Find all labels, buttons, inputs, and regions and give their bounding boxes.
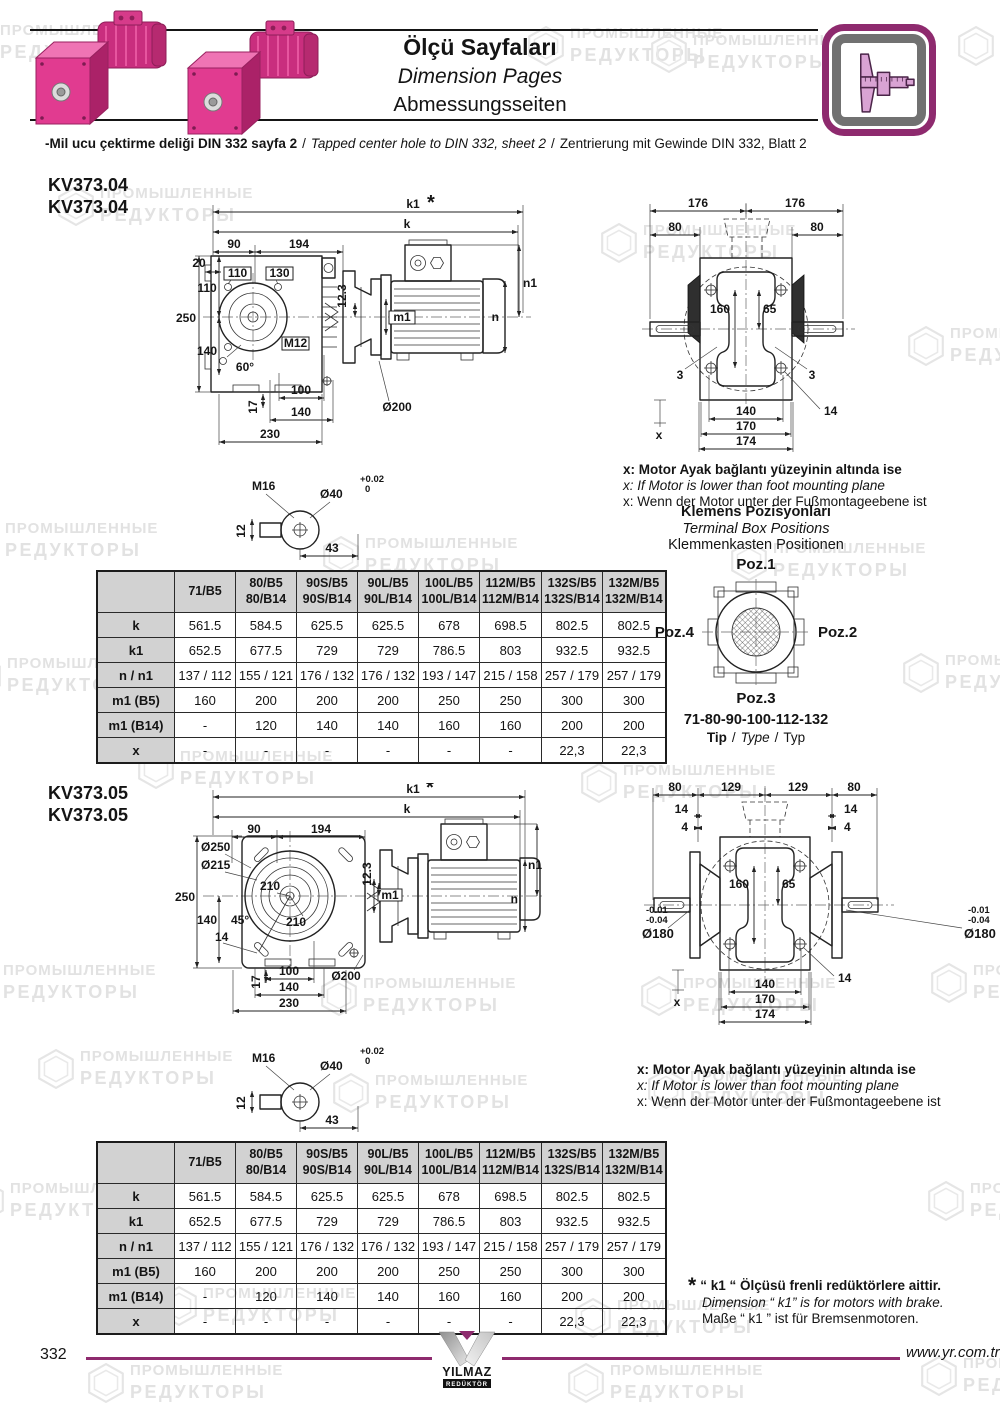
table-row: m1 (B14)-120140140160160200200	[97, 713, 666, 738]
column-header: 100L/B5 100L/B14	[419, 571, 480, 613]
dim-value: 257 / 179	[602, 1234, 665, 1259]
shaft-detail-kv05: M16 Ø40 +0.02 0 12 43	[222, 1040, 432, 1140]
model-label-kv04: KV373.04 KV373.04	[48, 174, 128, 218]
dim-value: 584.5	[236, 613, 297, 638]
hexagon-watermark-icon	[565, 1362, 607, 1404]
poz3-label: Poz.3	[716, 690, 796, 707]
brake-star: *	[426, 783, 434, 799]
watermark: ПРОМЫШЛЕННЫЕРЕДУКТОРЫ	[648, 32, 846, 74]
row-label: k1	[97, 1209, 175, 1234]
dim-label: 129	[721, 782, 741, 794]
hexagon-watermark-icon	[955, 25, 997, 67]
dim-label: 140	[197, 913, 217, 927]
dim-value: 300	[602, 688, 665, 713]
caliper-glyph	[841, 40, 917, 120]
brake-footnote: *“ k1 “ Ölçüsü frenli redüktörlere aitti…	[688, 1278, 944, 1328]
dim-label: 140	[197, 344, 217, 358]
dim-value: 22,3	[541, 1309, 602, 1335]
dim-label: 4	[681, 820, 688, 834]
dim-value: 698.5	[480, 1184, 542, 1209]
dim-label: 176	[688, 197, 708, 210]
dim-value: -	[236, 1309, 297, 1335]
hexagon-watermark-icon	[648, 32, 690, 74]
page-number: 332	[40, 1346, 67, 1364]
dim-label: 129	[788, 782, 808, 794]
dim-label: 3	[677, 368, 684, 382]
dim-value: 200	[236, 688, 297, 713]
dim-label: 60°	[236, 360, 254, 374]
dim-value: 140	[297, 1284, 358, 1309]
dim-label: m1	[381, 888, 399, 902]
dim-value: 176 / 132	[297, 1234, 358, 1259]
dim-label: 80	[668, 220, 682, 234]
dim-label: k1	[406, 197, 420, 211]
dim-label: 110	[228, 266, 248, 280]
dim-label: 3	[809, 368, 816, 382]
column-header: 80/B5 80/B14	[236, 1142, 297, 1184]
page-title-block: Ölçü Sayfaları Dimension Pages Abmessung…	[330, 34, 630, 117]
dim-label: 80	[668, 782, 682, 794]
dim-value: 120	[236, 713, 297, 738]
hexagon-watermark-icon	[598, 222, 640, 264]
dim-value: 561.5	[175, 1184, 236, 1209]
dim-value: 257 / 179	[602, 663, 665, 688]
dim-label: 210	[286, 915, 306, 929]
row-label: m1 (B5)	[97, 1259, 175, 1284]
row-label: x	[97, 738, 175, 764]
column-header: 71/B5	[175, 1142, 236, 1184]
dim-label: 194	[311, 822, 331, 836]
row-label: k1	[97, 638, 175, 663]
table-row: m1 (B5)160200200200250250300300	[97, 688, 666, 713]
hexagon-watermark-icon	[35, 1048, 77, 1090]
x-note-kv05: x: Motor Ayak bağlantı yüzeyinin altında…	[637, 1062, 941, 1110]
dim-label: 174	[755, 1007, 775, 1021]
column-header: 132M/B5 132M/B14	[602, 571, 665, 613]
corner-cell	[97, 1142, 175, 1184]
dim-value: 160	[419, 1284, 480, 1309]
column-header: 90S/B5 90S/B14	[297, 571, 358, 613]
dim-label: x	[674, 995, 681, 1009]
dim-label: Ø180	[964, 926, 996, 941]
dim-value: 786.5	[419, 1209, 480, 1234]
dim-value: 215 / 158	[480, 663, 542, 688]
column-header: 71/B5	[175, 571, 236, 613]
dim-value: 257 / 179	[541, 1234, 602, 1259]
dim-label: 230	[260, 427, 280, 441]
dim-label: n1	[528, 858, 542, 872]
dim-label: Ø180	[642, 926, 674, 941]
dim-label: 12	[234, 524, 248, 538]
dim-label: 43	[325, 1113, 339, 1127]
dim-value: 22,3	[541, 738, 602, 764]
kv05-side-drawing: k1 * k 90 194 Ø250 Ø215 210 210 25	[173, 783, 545, 1028]
dim-value: 250	[419, 1259, 480, 1284]
dim-value: 200	[541, 713, 602, 738]
dim-value: 140	[358, 1284, 419, 1309]
table-row: n / n1137 / 112155 / 121176 / 132176 / 1…	[97, 1234, 666, 1259]
dim-label: 45°	[231, 913, 249, 927]
hexagon-watermark-icon	[0, 520, 2, 562]
hexagon-watermark-icon	[925, 1180, 967, 1222]
dim-value: -	[480, 738, 542, 764]
row-label: x	[97, 1309, 175, 1335]
dim-label: 80	[847, 782, 861, 794]
dim-value: 257 / 179	[541, 663, 602, 688]
table-row: n / n1137 / 112155 / 121176 / 132176 / 1…	[97, 663, 666, 688]
dim-value: 677.5	[236, 1209, 297, 1234]
dim-value: 140	[297, 713, 358, 738]
dim-value: 932.5	[541, 638, 602, 663]
dim-value: 625.5	[358, 613, 419, 638]
dim-label: M16	[252, 1051, 276, 1065]
row-label: k	[97, 613, 175, 638]
dim-value: 561.5	[175, 613, 236, 638]
dim-value: 200	[297, 1259, 358, 1284]
dim-value: 652.5	[175, 638, 236, 663]
dim-label: 130	[269, 266, 289, 280]
terminal-positions-drawing	[700, 577, 812, 689]
dim-value: 625.5	[297, 613, 358, 638]
column-header: 100L/B5 100L/B14	[419, 1142, 480, 1184]
dim-label: 160	[729, 877, 749, 891]
dim-value: 729	[297, 638, 358, 663]
corner-cell	[97, 571, 175, 613]
dim-label: 12	[234, 1096, 248, 1110]
table-row: k561.5584.5625.5625.5678698.5802.5802.5	[97, 613, 666, 638]
table-row: m1 (B14)-120140140160160200200	[97, 1284, 666, 1309]
hexagon-watermark-icon	[578, 762, 620, 804]
row-label: m1 (B5)	[97, 688, 175, 713]
dim-value: -	[175, 713, 236, 738]
dim-value: 729	[297, 1209, 358, 1234]
dim-value: -	[236, 738, 297, 764]
dim-label: 12.3	[335, 284, 349, 308]
dim-value: 200	[358, 688, 419, 713]
dim-label: 176	[785, 197, 805, 210]
din-note-tr: -Mil ucu çektirme deliği DIN 332 sayfa 2	[45, 136, 297, 151]
column-header: 112M/B5 112M/B14	[480, 1142, 542, 1184]
dim-value: 215 / 158	[480, 1234, 542, 1259]
dim-value: 160	[175, 1259, 236, 1284]
page-title-de: Abmessungsseiten	[330, 93, 630, 117]
dim-label: 90	[247, 822, 261, 836]
watermark: ПРОМЫШЛЕННЫЕРЕДУКТОРЫ	[85, 1362, 283, 1404]
dim-value: 250	[480, 688, 542, 713]
dim-label: 17	[249, 975, 263, 989]
type-line: Tip/Type/Typ	[650, 730, 862, 745]
dim-label: 140	[279, 980, 299, 994]
dim-label: x	[656, 428, 663, 442]
column-header: 132S/B5 132S/B14	[541, 571, 602, 613]
dim-label: 14	[215, 930, 229, 944]
x-note-kv04: x: Motor Ayak bağlantı yüzeyinin altında…	[623, 462, 927, 510]
dim-value: 137 / 112	[175, 1234, 236, 1259]
logo-name: YILMAZ	[442, 1365, 492, 1379]
catalog-page: ПРОМЫШЛЕННЫЕРЕДУКТОРЫПРОМЫШЛЕННЫЕРЕДУКТО…	[0, 0, 1000, 1414]
dim-value: 932.5	[541, 1209, 602, 1234]
dim-value: 200	[541, 1284, 602, 1309]
poz2-label: Poz.2	[818, 624, 857, 641]
dim-label: 140	[736, 404, 756, 418]
watermark: ПРОМЫШЛЕННЫЕРЕДУКТОРЫ	[900, 652, 1000, 694]
tolerance-label: +0.02	[360, 474, 384, 485]
dim-value: 786.5	[419, 638, 480, 663]
hexagon-watermark-icon	[918, 1355, 960, 1397]
watermark: ПРОМЫШЛЕННЫЕРЕДУКТОРЫ	[0, 520, 158, 562]
din-note-de: Zentrierung mit Gewinde DIN 332, Blatt 2	[560, 136, 807, 151]
dim-value: 677.5	[236, 638, 297, 663]
watermark: ПРОМЫШЛЕННЫЕРЕДУКТОРЫ	[0, 962, 156, 1004]
caliper-icon-frame	[822, 24, 936, 136]
dim-label: 14	[675, 802, 689, 816]
row-label: n / n1	[97, 663, 175, 688]
watermark: ПРОМЫШЛЕННЫЕРЕДУКТОРЫ	[955, 25, 1000, 67]
column-header: 90L/B5 90L/B14	[358, 571, 419, 613]
dim-label: Ø40	[320, 1059, 343, 1073]
watermark: ПРОМЫШЛЕННЫЕРЕДУКТОРЫ	[918, 1355, 1000, 1397]
column-header: 90S/B5 90S/B14	[297, 1142, 358, 1184]
dim-value: 155 / 121	[236, 663, 297, 688]
poz1-label: Poz.1	[716, 556, 796, 573]
dim-label: n	[492, 310, 499, 324]
dim-value: -	[297, 738, 358, 764]
row-label: k	[97, 1184, 175, 1209]
gearmotor-photo	[28, 6, 338, 140]
dim-label: 140	[755, 977, 775, 991]
page-title-en: Dimension Pages	[330, 65, 630, 89]
caliper-icon	[832, 34, 926, 126]
dim-value: 193 / 147	[419, 1234, 480, 1259]
dim-label: k	[404, 217, 411, 231]
dim-value: -	[358, 1309, 419, 1335]
dim-value: 802.5	[541, 1184, 602, 1209]
din-note: -Mil ucu çektirme deliği DIN 332 sayfa 2…	[45, 136, 807, 151]
dim-value: 200	[358, 1259, 419, 1284]
dim-value: 193 / 147	[419, 663, 480, 688]
dim-value: 160	[480, 713, 542, 738]
dim-value: 803	[480, 1209, 542, 1234]
dim-value: 802.5	[602, 1184, 665, 1209]
dim-value: 160	[480, 1284, 542, 1309]
watermark: ПРОМЫШЛЕННЫЕРЕДУКТОРЫ	[925, 1180, 1000, 1222]
dim-label: Ø40	[320, 487, 343, 501]
column-header: 112M/B5 112M/B14	[480, 571, 542, 613]
dim-label: k1	[406, 783, 420, 796]
dim-value: 137 / 112	[175, 663, 236, 688]
hexagon-watermark-icon	[0, 655, 4, 697]
dim-value: 300	[541, 1259, 602, 1284]
watermark: ПРОМЫШЛЕННЫЕРЕДУКТОРЫ	[35, 1048, 233, 1090]
hexagon-watermark-icon	[0, 1180, 7, 1222]
din-note-en: Tapped center hole to DIN 332, sheet 2	[311, 136, 546, 151]
dim-label: 4	[844, 820, 851, 834]
dimension-table-kv04: 71/B580/B5 80/B1490S/B5 90S/B1490L/B5 90…	[96, 570, 667, 764]
table-row: m1 (B5)160200200200250250300300	[97, 1259, 666, 1284]
dim-label: 12.3	[360, 862, 374, 886]
dim-value: 250	[419, 688, 480, 713]
dim-value: 802.5	[602, 613, 665, 638]
dim-value: 155 / 121	[236, 1234, 297, 1259]
tolerance-label: 0	[365, 484, 370, 495]
dim-value: 625.5	[358, 1184, 419, 1209]
dim-label: 174	[736, 434, 756, 448]
dim-label: 160	[710, 302, 730, 316]
row-label: m1 (B14)	[97, 713, 175, 738]
dim-value: 584.5	[236, 1184, 297, 1209]
kv04-side-drawing: k1 * k 90 194 20 110 130 M12 60° 250	[175, 195, 537, 457]
dim-value: 250	[480, 1259, 542, 1284]
table-row: k561.5584.5625.5625.5678698.5802.5802.5	[97, 1184, 666, 1209]
dimension-table-kv05: 71/B580/B5 80/B1490S/B5 90S/B1490L/B5 90…	[96, 1141, 667, 1335]
dim-value: 160	[175, 688, 236, 713]
dim-value: 176 / 132	[358, 663, 419, 688]
dim-value: 200	[602, 1284, 665, 1309]
dim-value: -	[175, 738, 236, 764]
column-header: 132S/B5 132S/B14	[541, 1142, 602, 1184]
tolerance-label: -0.04	[968, 915, 990, 926]
dim-value: 176 / 132	[358, 1234, 419, 1259]
table-row: k1652.5677.5729729786.5803932.5932.5	[97, 1209, 666, 1234]
kv04-front-drawing: 176 176 80 80 160 65 3 3	[640, 197, 1000, 459]
dim-label: 100	[291, 383, 311, 397]
dim-value: 802.5	[541, 613, 602, 638]
dim-label: n	[511, 892, 518, 906]
footer-rule-left	[86, 1357, 432, 1360]
dim-value: 200	[297, 688, 358, 713]
dim-value: 932.5	[602, 1209, 665, 1234]
dim-label: 80	[810, 220, 824, 234]
dim-value: 300	[541, 688, 602, 713]
dim-label: 65	[782, 877, 796, 891]
dim-label: 250	[176, 311, 196, 325]
website-url: www.yr.com.tr	[906, 1344, 1000, 1361]
dim-value: -	[297, 1309, 358, 1335]
dim-value: 729	[358, 638, 419, 663]
row-label: m1 (B14)	[97, 1284, 175, 1309]
dim-value: -	[175, 1309, 236, 1335]
column-header: 132M/B5 132M/B14	[602, 1142, 665, 1184]
row-label: n / n1	[97, 1234, 175, 1259]
dim-value: 625.5	[297, 1184, 358, 1209]
tolerance-label: +0.02	[360, 1046, 384, 1057]
dim-label: m1	[393, 310, 411, 324]
logo-sub: REDÜKTÖR	[446, 1381, 488, 1388]
dim-label: 90	[227, 237, 241, 251]
footnote-star: *	[688, 1274, 696, 1297]
dim-value: 160	[419, 713, 480, 738]
dim-value: 300	[602, 1259, 665, 1284]
dim-label: 65	[763, 302, 777, 316]
yilmaz-logo: YILMAZ REDÜKTÖR	[436, 1330, 498, 1390]
dim-label: 100	[279, 964, 299, 978]
dim-label: 14	[824, 404, 838, 418]
dim-label: 170	[755, 992, 775, 1006]
dim-value: 932.5	[602, 638, 665, 663]
kv05-front-drawing: 80 129 129 80 14 4 14 4	[638, 782, 1000, 1032]
dim-label: 250	[175, 890, 195, 904]
dim-label: 110	[197, 281, 217, 295]
model-label-kv05: KV373.05 KV373.05	[48, 782, 128, 826]
dim-value: 120	[236, 1284, 297, 1309]
dim-label: 17	[246, 400, 260, 414]
dim-value: -	[358, 738, 419, 764]
terminal-box-titles: Klemens Pozisyonları Terminal Box Positi…	[640, 504, 872, 554]
dim-label: M16	[252, 479, 276, 493]
dim-value: 176 / 132	[297, 663, 358, 688]
dim-value: 22,3	[602, 738, 665, 764]
dim-label: n1	[523, 276, 537, 290]
column-header: 90L/B5 90L/B14	[358, 1142, 419, 1184]
dim-value: 200	[236, 1259, 297, 1284]
dim-label: 194	[289, 237, 309, 251]
dim-label: 14	[844, 802, 858, 816]
dim-label: k	[404, 802, 411, 816]
dim-value: 729	[358, 1209, 419, 1234]
dim-label: M12	[284, 336, 308, 350]
dim-label: Ø250	[201, 840, 231, 854]
terminal-sizes: 71-80-90-100-112-132	[650, 712, 862, 728]
dim-label: 210	[260, 879, 280, 893]
table-row: x------22,322,3	[97, 1309, 666, 1335]
dim-value: 698.5	[480, 613, 542, 638]
dim-label: 230	[279, 996, 299, 1010]
hexagon-watermark-icon	[900, 652, 942, 694]
dim-value: 140	[358, 713, 419, 738]
dim-label: 43	[325, 541, 339, 555]
dim-value: -	[419, 738, 480, 764]
dim-label: 140	[291, 405, 311, 419]
shaft-detail-kv04: M16 Ø40 +0.02 0 12 43	[222, 468, 432, 568]
dim-value: 652.5	[175, 1209, 236, 1234]
dim-label: Ø200	[382, 400, 412, 414]
dim-label: Ø215	[201, 858, 231, 872]
dim-label: 14	[838, 971, 852, 985]
column-header: 80/B5 80/B14	[236, 571, 297, 613]
dim-value: -	[175, 1284, 236, 1309]
table-row: k1652.5677.5729729786.5803932.5932.5	[97, 638, 666, 663]
dim-value: 678	[419, 613, 480, 638]
dim-value: 678	[419, 1184, 480, 1209]
brake-star: *	[427, 195, 435, 214]
table-row: x------22,322,3	[97, 738, 666, 764]
dim-label: 170	[736, 419, 756, 433]
dim-value: 803	[480, 638, 542, 663]
dim-value: 22,3	[602, 1309, 665, 1335]
watermark: ПРОМЫШЛЕННЫЕРЕДУКТОРЫ	[565, 1362, 763, 1404]
dim-value: 200	[602, 713, 665, 738]
page-title: Ölçü Sayfaları	[330, 34, 630, 61]
tolerance-label: -0.04	[646, 915, 668, 926]
footer-rule-right	[502, 1357, 900, 1360]
tolerance-label: 0	[365, 1056, 370, 1067]
hexagon-watermark-icon	[85, 1362, 127, 1404]
